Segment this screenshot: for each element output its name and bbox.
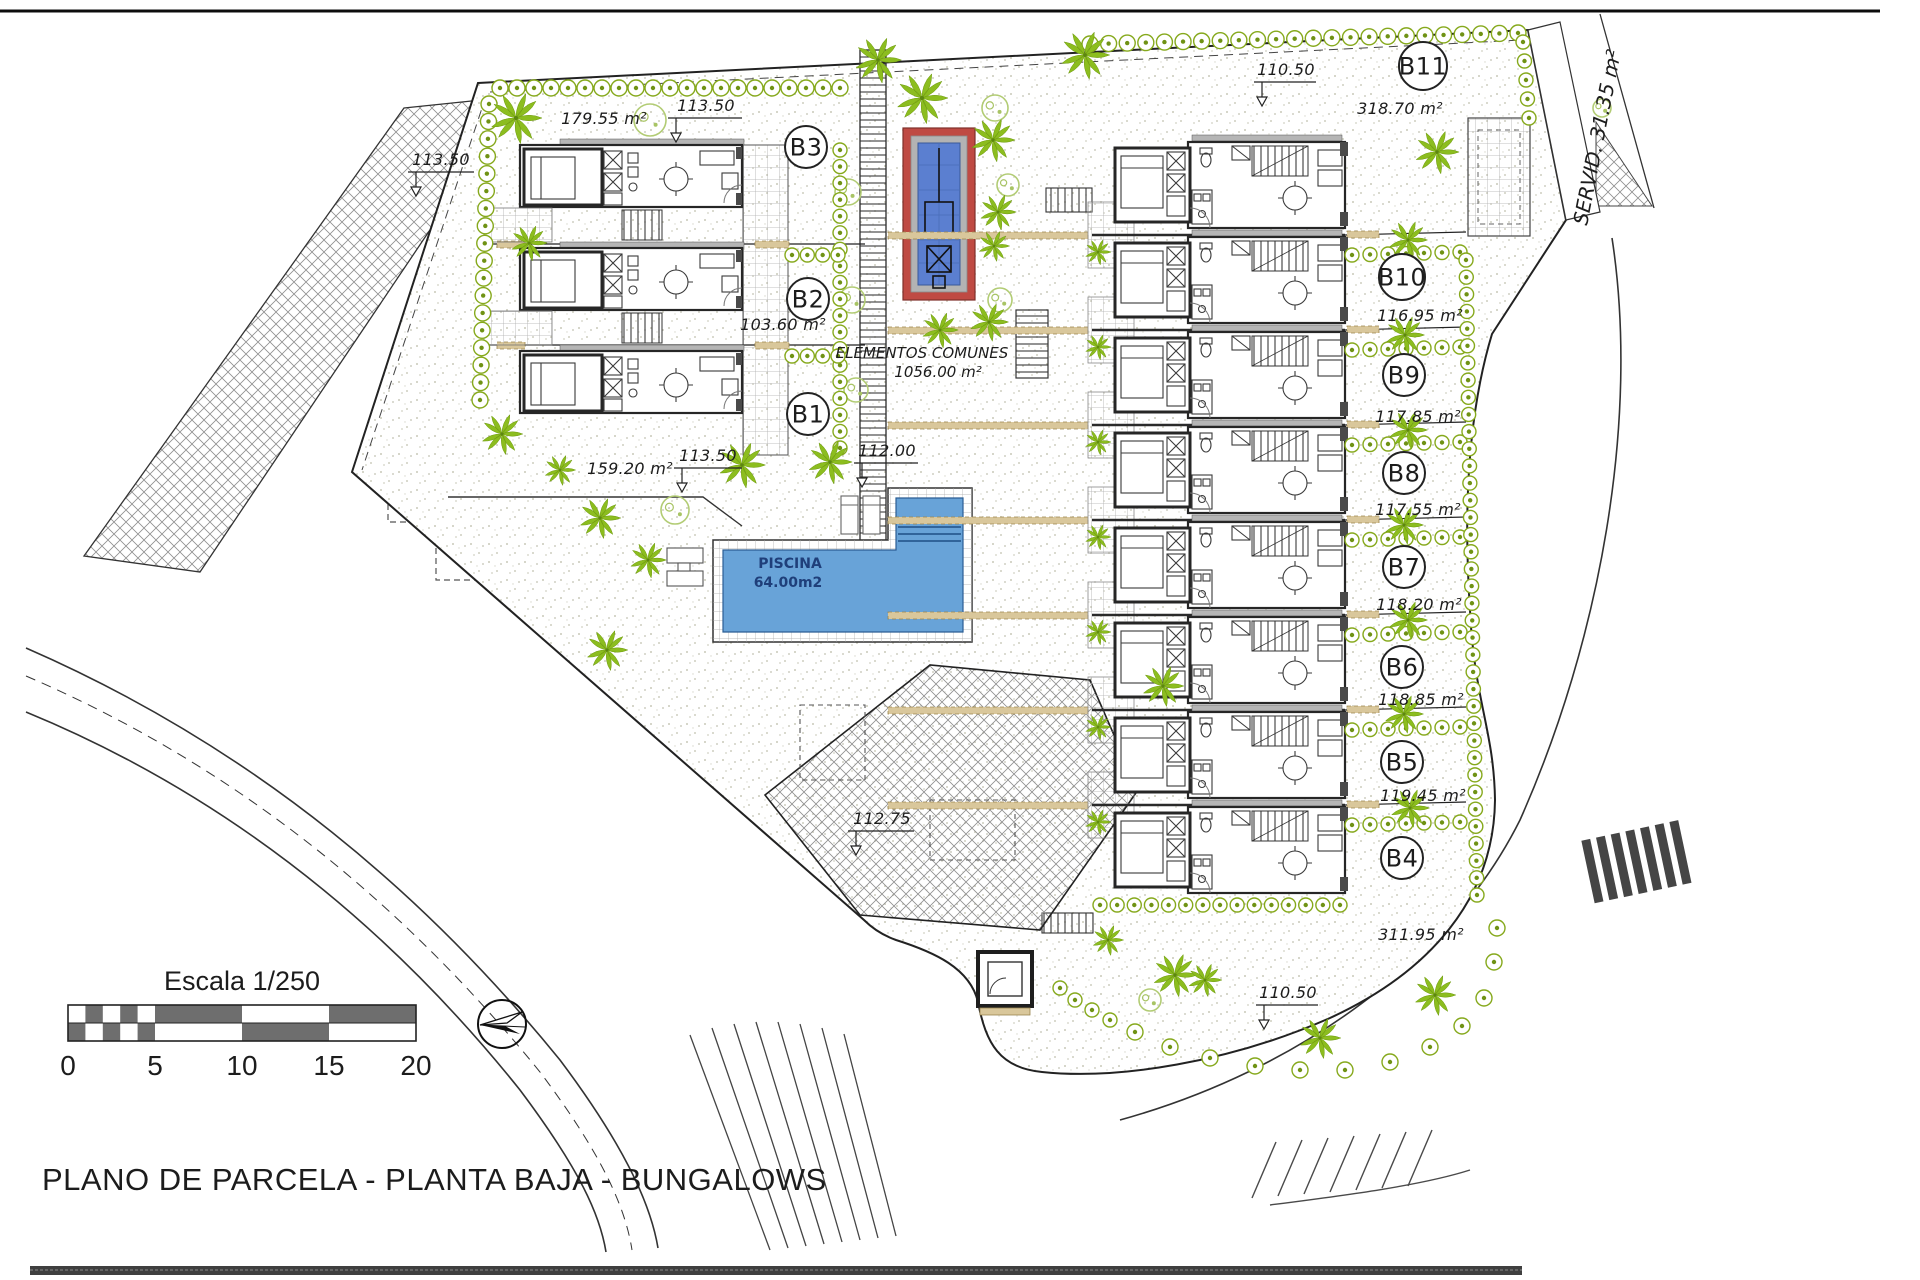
page-title: PLANO DE PARCELA - PLANTA BAJA - BUNGALO… [42,1162,827,1197]
pool-area-label: 64.00m2 [754,575,823,591]
unit-badge-b2: B2 [787,278,829,320]
svg-text:113.50: 113.50 [412,150,470,169]
svg-text:112.00: 112.00 [858,441,916,460]
paved-pad [1468,118,1530,236]
svg-text:B9: B9 [1388,362,1421,390]
scale-bar: Escala 1/250 0 5 10 15 20 [60,966,431,1081]
unit-badge-b11: B11 [1399,42,1448,90]
unit-badge-b4: B4 [1381,837,1423,879]
tiled-corridor [743,145,788,455]
scale-tick: 5 [147,1050,163,1081]
stairs [1016,310,1048,378]
walkway-connector [1046,188,1092,212]
bungalow-unit [1092,705,1348,805]
svg-text:110.50: 110.50 [1259,983,1317,1002]
sheet-bottom-strip [30,1266,1522,1275]
svg-text:B11: B11 [1399,53,1448,81]
right-building [1088,135,1348,893]
svg-text:B6: B6 [1386,654,1419,682]
svg-text:113.50: 113.50 [679,446,737,465]
parking-stripes [1252,1130,1470,1205]
bungalow-unit [520,345,744,413]
unit-badge-b10: B10 [1378,254,1427,300]
svg-text:110.50: 110.50 [1257,60,1315,79]
svg-text:112.75: 112.75 [853,809,911,828]
plot-area-label-b1: 159.20 m² [587,459,673,478]
plot-area-label-b2: 103.60 m² [740,315,826,334]
plot-area-label-b10: 116.95 m² [1377,306,1463,325]
svg-text:B7: B7 [1388,554,1421,582]
plot-area-label-b4: 311.95 m² [1378,925,1464,944]
left-building [484,139,744,413]
bungalow-unit [1092,420,1348,520]
utility-room [978,952,1032,1015]
svg-text:B3: B3 [790,134,823,162]
scale-tick: 20 [400,1050,431,1081]
svg-text:B1: B1 [792,401,825,429]
common-elements-area: 1056.00 m² [894,363,981,381]
pool-name-label: PISCINA [758,556,822,572]
svg-text:B4: B4 [1386,845,1419,873]
plot-area-label-b5: 119.45 m² [1380,786,1466,805]
common-elements-label: ELEMENTOS COMUNES [836,344,1009,362]
svg-text:B10: B10 [1378,264,1427,292]
bungalow-unit [1092,515,1348,615]
unit-badge-b9: B9 [1383,354,1425,396]
bungalow-unit [1092,230,1348,330]
svg-text:B2: B2 [792,286,825,314]
plot-area-label-b9: 117.85 m² [1375,407,1461,426]
unit-badge-b8: B8 [1383,452,1425,494]
scale-tick: 10 [226,1050,257,1081]
unit-badge-b1: B1 [787,393,829,435]
svg-text:113.50: 113.50 [677,96,735,115]
crosswalk [1581,820,1691,903]
playground-court [903,128,975,300]
bungalow-unit [1092,610,1348,710]
svg-text:B8: B8 [1388,460,1421,488]
architectural-site-plan-page: B3 B2 B1 B11 B10 B9 B8 B7 B6 B5 B4 179.5… [0,0,1920,1280]
scale-tick: 0 [60,1050,76,1081]
scale-tick: 15 [313,1050,344,1081]
site-plan-drawing: B3 B2 B1 B11 B10 B9 B8 B7 B6 B5 B4 179.5… [0,0,1920,1280]
bungalow-unit [1115,800,1348,893]
plot-area-label-b6: 118.85 m² [1378,690,1464,709]
unit-badge-b3: B3 [785,126,827,168]
north-arrow-icon [478,1000,526,1048]
plot-area-label-b8: 117.55 m² [1375,500,1461,519]
svg-text:B5: B5 [1386,749,1419,777]
plot-area-label-b3: 179.55 m² [561,109,647,128]
unit-badge-b6: B6 [1381,646,1423,688]
bungalow-unit [1092,135,1348,235]
road-curb [26,648,658,1248]
unit-badge-b7: B7 [1383,546,1425,588]
unit-badge-b5: B5 [1381,741,1423,783]
parking-bays [690,1022,896,1250]
bungalow-unit [1092,325,1348,425]
scale-title: Escala 1/250 [164,966,320,996]
plot-area-label-b7: 118.20 m² [1376,595,1462,614]
plot-area-label-b11: 318.70 m² [1357,99,1443,118]
